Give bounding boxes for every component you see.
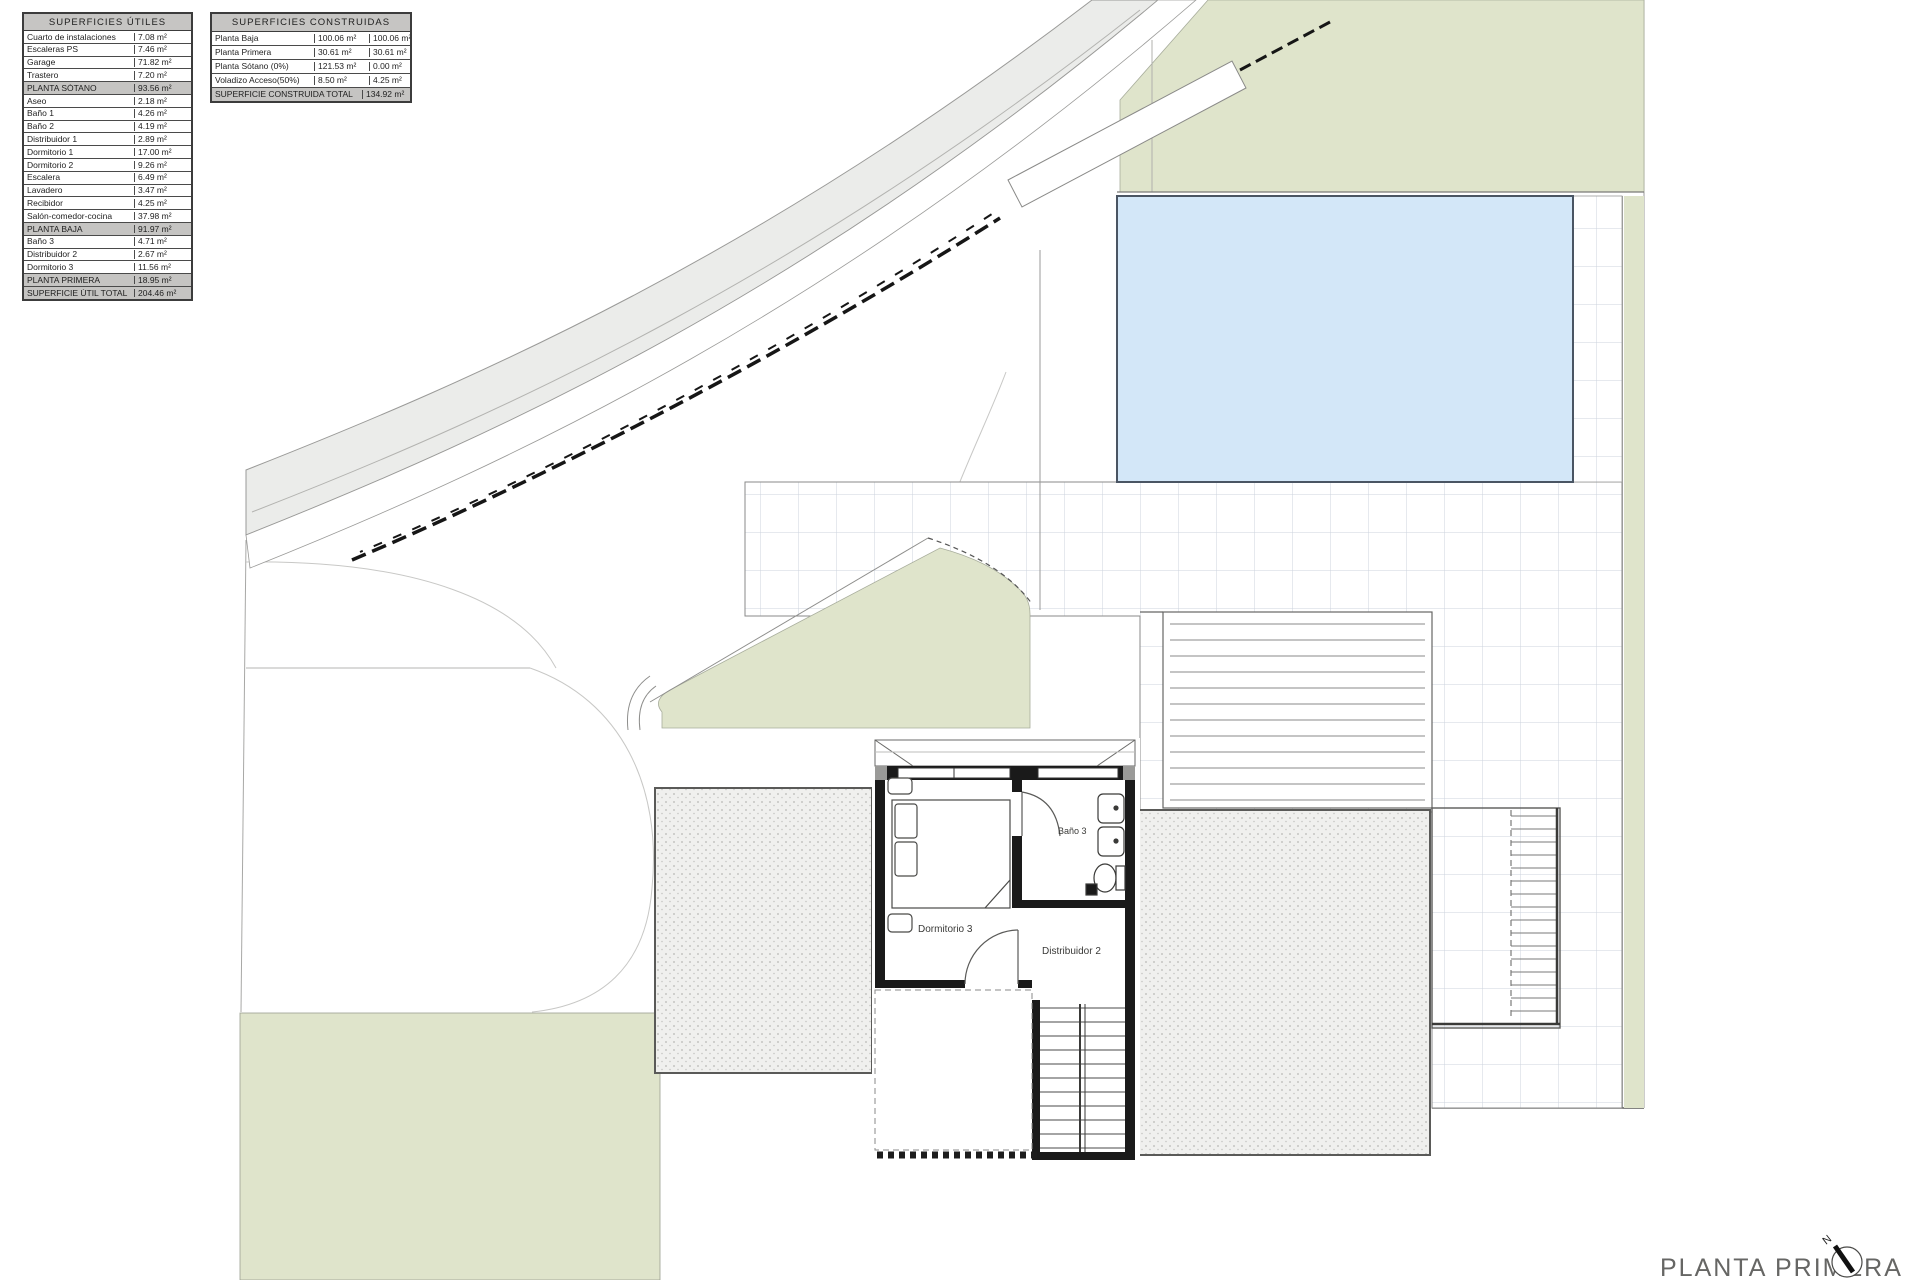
table-cell-label: Escaleras PS bbox=[24, 45, 134, 54]
table-cell-label: Lavadero bbox=[24, 186, 134, 195]
table-row: Escalera6.49 m² bbox=[24, 171, 191, 184]
table-title: SUPERFICIES CONSTRUIDAS bbox=[212, 14, 410, 32]
table-cell-label: Dormitorio 2 bbox=[24, 161, 134, 170]
terrace-right bbox=[1135, 810, 1430, 1155]
table-cell-value: 2.89 m² bbox=[134, 135, 191, 144]
table-cell-label: Recibidor bbox=[24, 199, 134, 208]
table-cell-value: 71.82 m² bbox=[134, 58, 191, 67]
table-cell-value: 7.20 m² bbox=[134, 71, 191, 80]
table-row: PLANTA SÓTANO93.56 m² bbox=[24, 81, 191, 94]
table-cell-value: 4.25 m² bbox=[134, 199, 191, 208]
table-cell-label: Dormitorio 3 bbox=[24, 263, 134, 272]
table-cell-label: PLANTA SÓTANO bbox=[24, 84, 134, 93]
table-body: Planta Baja100.06 m²100.06 m²Planta Prim… bbox=[212, 32, 410, 101]
cantilever-strip bbox=[875, 990, 1040, 1155]
table-cell-value2: 30.61 m² bbox=[369, 48, 410, 57]
table-cell-label: Planta Sótano (0%) bbox=[212, 62, 314, 71]
table-cell-label: Garage bbox=[24, 58, 134, 67]
pergola-slats bbox=[1140, 612, 1432, 808]
garden-right-strip bbox=[1624, 196, 1644, 1108]
table-row: Trastero7.20 m² bbox=[24, 68, 191, 81]
table-cell-label: Distribuidor 2 bbox=[24, 250, 134, 259]
terrace-left bbox=[655, 788, 872, 1073]
table-row: Baño 34.71 m² bbox=[24, 235, 191, 248]
table-cell-label: Planta Baja bbox=[212, 34, 314, 43]
table-cell-value: 37.98 m² bbox=[134, 212, 191, 221]
house-floorplan: Dormitorio 3 Baño 3 Distribuidor 2 bbox=[872, 738, 1140, 1162]
table-row: Dormitorio 311.56 m² bbox=[24, 260, 191, 273]
plan-title: PLANTA PRIMERA bbox=[1660, 1254, 1903, 1280]
table-cell-value1: 30.61 m² bbox=[314, 48, 369, 57]
table-cell-label: Baño 1 bbox=[24, 109, 134, 118]
table-row: Baño 24.19 m² bbox=[24, 120, 191, 133]
table-row: PLANTA BAJA91.97 m² bbox=[24, 222, 191, 235]
table-cell-label: Planta Primera bbox=[212, 48, 314, 57]
swimming-pool bbox=[1117, 196, 1573, 482]
room-label-dormitorio-3: Dormitorio 3 bbox=[918, 924, 973, 935]
table-row: Planta Sótano (0%)121.53 m²0.00 m² bbox=[212, 59, 410, 73]
table-cell-value: 4.19 m² bbox=[134, 122, 191, 131]
table-cell-label: Voladizo Acceso(50%) bbox=[212, 76, 314, 85]
table-cell-value: 2.18 m² bbox=[134, 97, 191, 106]
table-row: Lavadero3.47 m² bbox=[24, 184, 191, 197]
table-row: Escaleras PS7.46 m² bbox=[24, 43, 191, 56]
table-cell-value1: 100.06 m² bbox=[314, 34, 369, 43]
table-cell-value: 91.97 m² bbox=[134, 225, 191, 234]
table-cell-value2: 134.92 m² bbox=[362, 90, 410, 99]
roof-eave bbox=[875, 740, 1135, 766]
table-row: SUPERFICIE ÚTIL TOTAL204.46 m² bbox=[24, 286, 191, 299]
superficies-construidas-table: SUPERFICIES CONSTRUIDAS Planta Baja100.0… bbox=[210, 12, 412, 103]
table-row: Recibidor4.25 m² bbox=[24, 196, 191, 209]
table-row: Cuarto de instalaciones7.08 m² bbox=[24, 31, 191, 43]
table-cell-label: Baño 3 bbox=[24, 237, 134, 246]
table-cell-label: SUPERFICIE ÚTIL TOTAL bbox=[24, 289, 134, 298]
table-cell-label: Baño 2 bbox=[24, 122, 134, 131]
table-cell-label: PLANTA BAJA bbox=[24, 225, 134, 234]
table-row: Distribuidor 22.67 m² bbox=[24, 248, 191, 261]
site-plan-drawing: Dormitorio 3 Baño 3 Distribuidor 2 PLANT… bbox=[0, 0, 1920, 1280]
table-cell-value: 18.95 m² bbox=[134, 276, 191, 285]
superficies-utiles-table: SUPERFICIES ÚTILES Cuarto de instalacion… bbox=[22, 12, 193, 301]
table-cell-value: 7.08 m² bbox=[134, 33, 191, 42]
table-cell-label: Trastero bbox=[24, 71, 134, 80]
table-cell-value: 2.67 m² bbox=[134, 250, 191, 259]
table-cell-label: Dormitorio 1 bbox=[24, 148, 134, 157]
table-row: Distribuidor 12.89 m² bbox=[24, 132, 191, 145]
north-label: N bbox=[1820, 1233, 1834, 1247]
table-row: PLANTA PRIMERA18.95 m² bbox=[24, 273, 191, 286]
table-cell-value: 6.49 m² bbox=[134, 173, 191, 182]
room-label-bano-3: Baño 3 bbox=[1058, 826, 1087, 836]
table-body: Cuarto de instalaciones7.08 m²Escaleras … bbox=[24, 31, 191, 299]
garden-bottom-left bbox=[240, 1013, 660, 1280]
table-cell-value: 204.46 m² bbox=[134, 289, 191, 298]
table-row: Dormitorio 117.00 m² bbox=[24, 145, 191, 158]
window bbox=[875, 766, 1135, 780]
table-cell-value2: 4.25 m² bbox=[369, 76, 410, 85]
table-row: Voladizo Acceso(50%)8.50 m²4.25 m² bbox=[212, 73, 410, 87]
table-row: Planta Primera30.61 m²30.61 m² bbox=[212, 45, 410, 59]
table-row: Dormitorio 29.26 m² bbox=[24, 158, 191, 171]
table-cell-label: Distribuidor 1 bbox=[24, 135, 134, 144]
table-cell-value: 17.00 m² bbox=[134, 148, 191, 157]
table-cell-label: PLANTA PRIMERA bbox=[24, 276, 134, 285]
table-cell-value: 4.71 m² bbox=[134, 237, 191, 246]
table-row: Garage71.82 m² bbox=[24, 56, 191, 69]
table-cell-label: Escalera bbox=[24, 173, 134, 182]
table-cell-value2: 100.06 m² bbox=[369, 34, 410, 43]
table-cell-value: 9.26 m² bbox=[134, 161, 191, 170]
room-label-distribuidor-2: Distribuidor 2 bbox=[1042, 946, 1101, 957]
table-cell-value1: 121.53 m² bbox=[314, 62, 369, 71]
table-cell-value2: 0.00 m² bbox=[369, 62, 410, 71]
table-row: Aseo2.18 m² bbox=[24, 94, 191, 107]
table-cell-label: Aseo bbox=[24, 97, 134, 106]
table-cell-value: 4.26 m² bbox=[134, 109, 191, 118]
floor-plan-sheet: Dormitorio 3 Baño 3 Distribuidor 2 PLANT… bbox=[0, 0, 1920, 1280]
table-cell-label: Salón-comedor-cocina bbox=[24, 212, 134, 221]
table-cell-value: 11.56 m² bbox=[134, 263, 191, 272]
table-row: Salón-comedor-cocina37.98 m² bbox=[24, 209, 191, 222]
table-row: Baño 14.26 m² bbox=[24, 107, 191, 120]
table-cell-value: 3.47 m² bbox=[134, 186, 191, 195]
table-row: SUPERFICIE CONSTRUIDA TOTAL134.92 m² bbox=[212, 87, 410, 101]
table-cell-label: Cuarto de instalaciones bbox=[24, 33, 134, 42]
table-cell-value: 93.56 m² bbox=[134, 84, 191, 93]
table-cell-value: 7.46 m² bbox=[134, 45, 191, 54]
table-title: SUPERFICIES ÚTILES bbox=[24, 14, 191, 31]
table-cell-value1: 8.50 m² bbox=[314, 76, 369, 85]
table-cell-label: SUPERFICIE CONSTRUIDA TOTAL bbox=[212, 90, 362, 99]
table-row: Planta Baja100.06 m²100.06 m² bbox=[212, 32, 410, 45]
